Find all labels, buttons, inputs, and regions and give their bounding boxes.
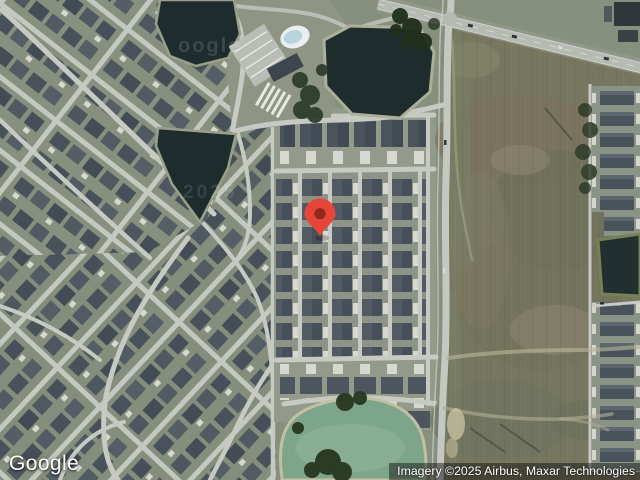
building-roof: [604, 6, 612, 22]
house-row: [592, 86, 640, 212]
pin-dot: [314, 208, 325, 219]
imagery-attribution: Imagery ©2025 Airbus, Maxar Technologies: [389, 463, 640, 480]
house-row: [604, 212, 640, 236]
satellite-imagery: oogle 2025: [0, 0, 640, 480]
sand-patch: [447, 408, 465, 440]
imagery-watermark: oogle: [178, 35, 241, 57]
building-roof: [618, 30, 638, 42]
map-viewport[interactable]: oogle 2025 Google Imagery ©2025 Airbus, …: [0, 0, 640, 480]
house-row: [280, 118, 432, 168]
retention-pond: [598, 234, 640, 296]
house-row: [592, 302, 640, 472]
sand-patch: [446, 438, 458, 458]
building-roof: [614, 2, 640, 26]
imagery-watermark: 2025: [183, 182, 237, 203]
google-logo[interactable]: Google: [9, 452, 79, 476]
pin-shadow: [315, 235, 329, 241]
